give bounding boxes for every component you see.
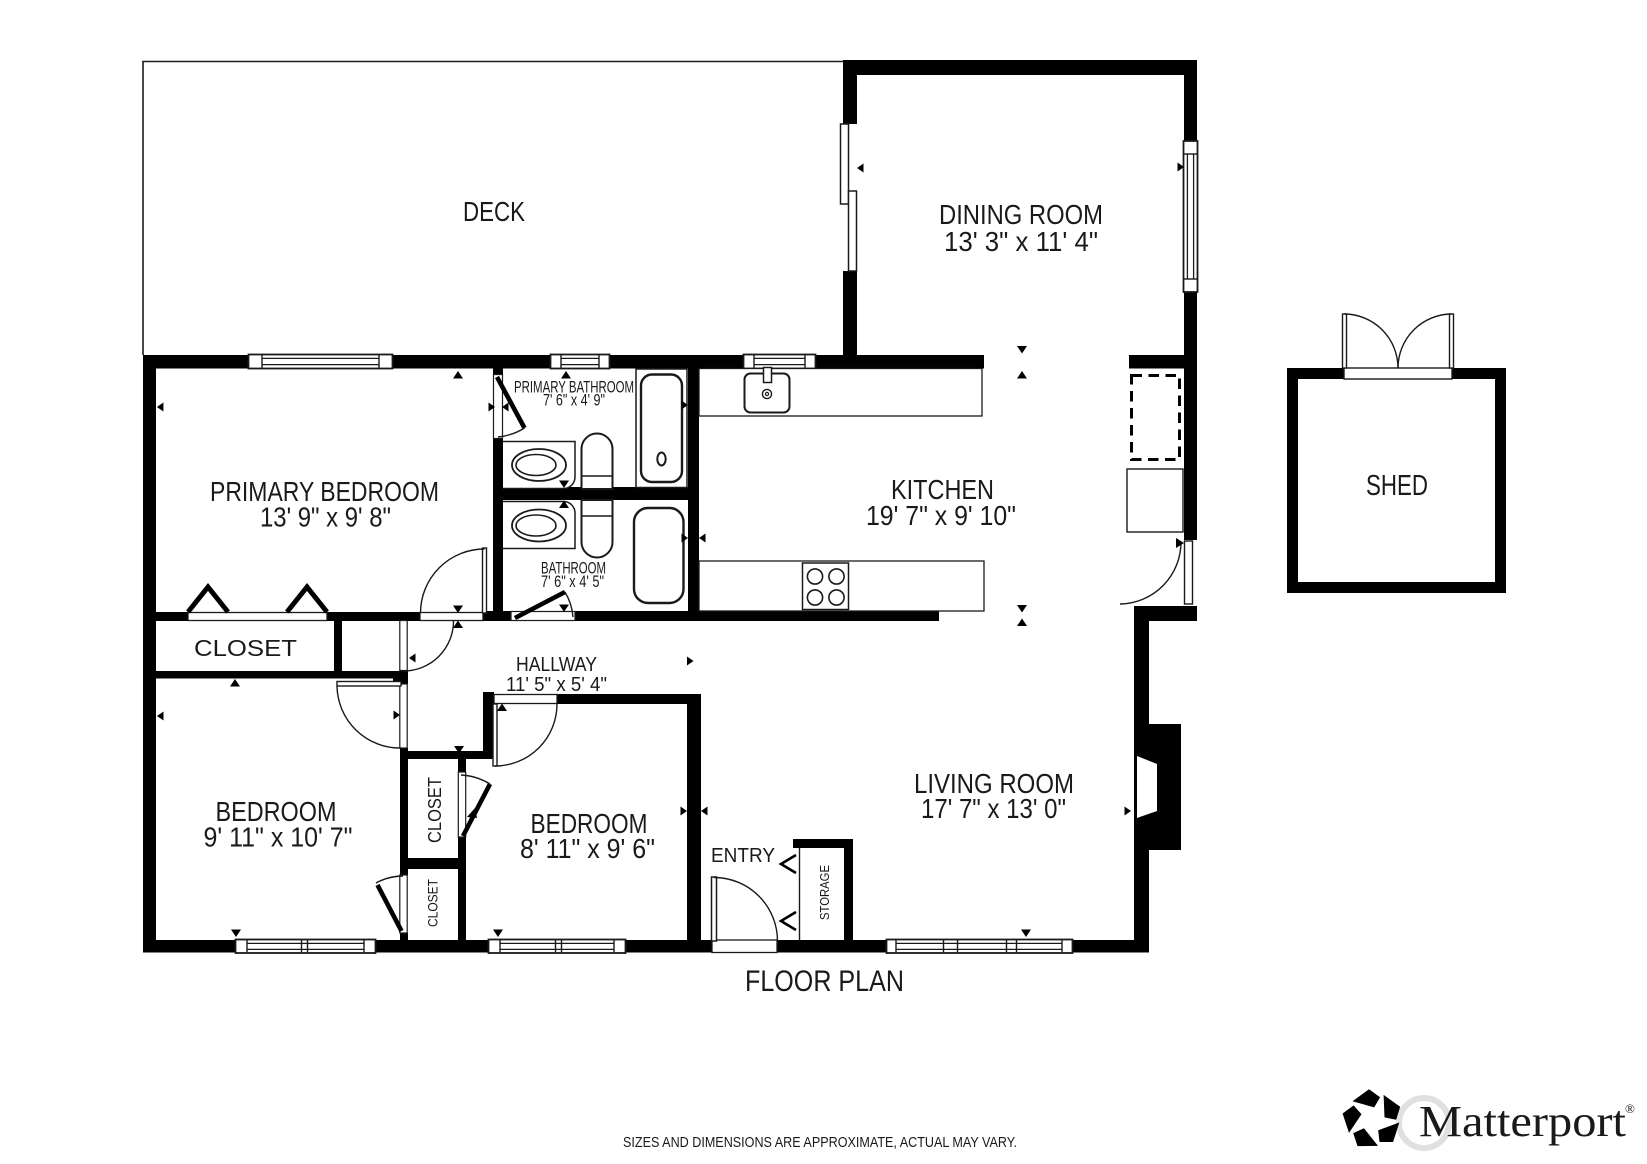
svg-text:Matterport: Matterport — [1419, 1097, 1626, 1146]
svg-text:7' 6" x 4' 9": 7' 6" x 4' 9" — [543, 392, 605, 410]
svg-text:HALLWAY: HALLWAY — [516, 654, 597, 676]
svg-text:11' 5" x 5' 4": 11' 5" x 5' 4" — [506, 674, 607, 696]
svg-text:®: ® — [1625, 1101, 1635, 1116]
svg-text:8' 11" x 9' 6": 8' 11" x 9' 6" — [520, 833, 655, 864]
svg-text:STORAGE: STORAGE — [817, 865, 832, 920]
svg-text:9' 11" x 10' 7": 9' 11" x 10' 7" — [204, 822, 353, 853]
svg-text:CLOSET: CLOSET — [194, 635, 297, 661]
svg-text:SIZES AND DIMENSIONS ARE APPRO: SIZES AND DIMENSIONS ARE APPROXIMATE, AC… — [623, 1135, 1017, 1151]
svg-text:FLOOR PLAN: FLOOR PLAN — [745, 965, 904, 998]
svg-text:17' 7" x 13' 0": 17' 7" x 13' 0" — [921, 793, 1066, 824]
svg-text:CLOSET: CLOSET — [424, 777, 445, 843]
svg-text:13' 9" x 9' 8": 13' 9" x 9' 8" — [260, 502, 391, 533]
svg-text:ENTRY: ENTRY — [711, 845, 775, 867]
svg-text:SHED: SHED — [1366, 470, 1428, 502]
svg-text:19' 7" x 9' 10": 19' 7" x 9' 10" — [866, 500, 1016, 531]
svg-text:7' 6" x 4' 5": 7' 6" x 4' 5" — [541, 573, 604, 591]
svg-text:13' 3" x 11' 4": 13' 3" x 11' 4" — [944, 226, 1098, 257]
svg-text:DECK: DECK — [463, 196, 526, 227]
svg-text:CLOSET: CLOSET — [426, 879, 441, 927]
